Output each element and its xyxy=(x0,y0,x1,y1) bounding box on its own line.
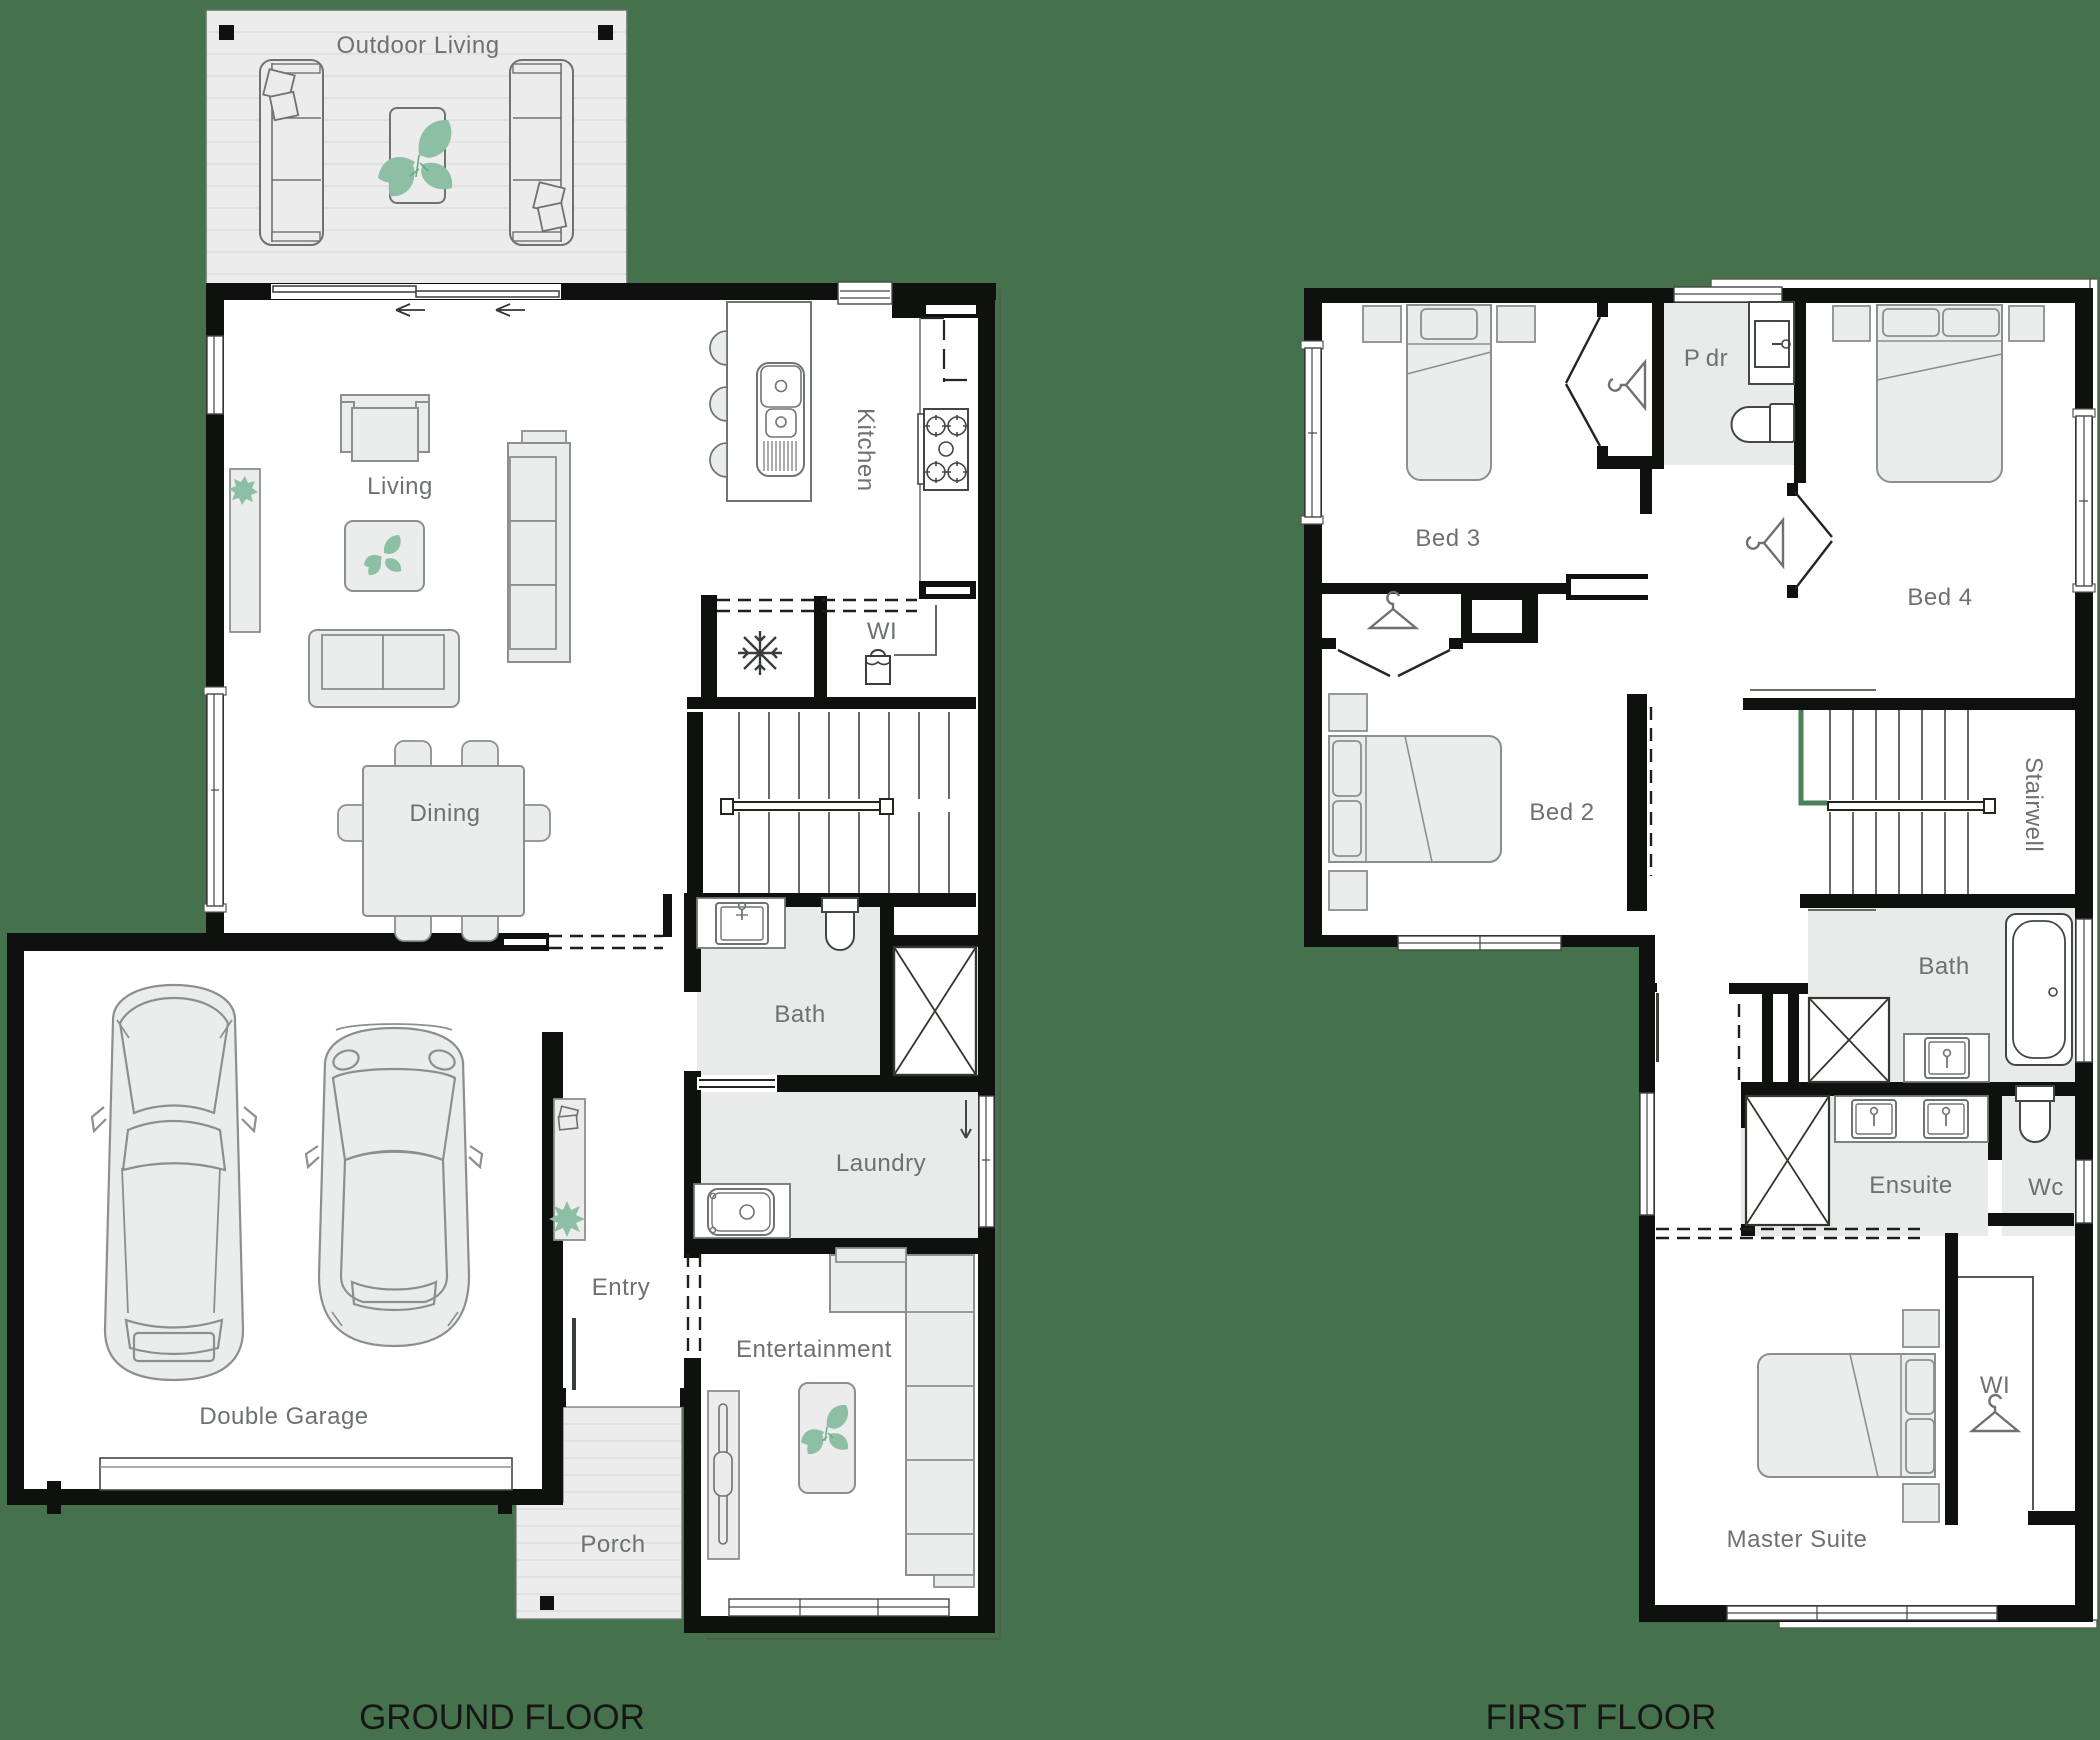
svg-text:Living: Living xyxy=(367,473,433,500)
svg-text:Entertainment: Entertainment xyxy=(736,1336,892,1363)
svg-text:Dining: Dining xyxy=(409,800,480,827)
svg-text:Porch: Porch xyxy=(580,1531,645,1558)
svg-text:Bath: Bath xyxy=(1918,953,1969,980)
svg-text:WI: WI xyxy=(867,618,897,645)
svg-text:Stairwell: Stairwell xyxy=(2020,757,2047,852)
svg-text:FIRST FLOOR: FIRST FLOOR xyxy=(1486,1698,1717,1737)
svg-text:Kitchen: Kitchen xyxy=(852,408,879,492)
svg-text:WI: WI xyxy=(1980,1372,2010,1399)
svg-text:Bath: Bath xyxy=(774,1001,825,1028)
svg-text:Bed 4: Bed 4 xyxy=(1907,584,1972,611)
svg-text:GROUND FLOOR: GROUND FLOOR xyxy=(359,1698,645,1737)
svg-text:P dr: P dr xyxy=(1684,345,1728,372)
svg-text:Entry: Entry xyxy=(592,1274,651,1301)
svg-text:Double Garage: Double Garage xyxy=(199,1403,368,1430)
svg-text:Outdoor Living: Outdoor Living xyxy=(336,32,499,59)
svg-text:Bed 2: Bed 2 xyxy=(1529,799,1594,826)
svg-text:Laundry: Laundry xyxy=(836,1150,926,1177)
svg-text:Wc: Wc xyxy=(2028,1174,2064,1201)
svg-text:Ensuite: Ensuite xyxy=(1869,1172,1953,1199)
svg-text:Master Suite: Master Suite xyxy=(1727,1526,1868,1553)
svg-text:Bed 3: Bed 3 xyxy=(1415,525,1480,552)
